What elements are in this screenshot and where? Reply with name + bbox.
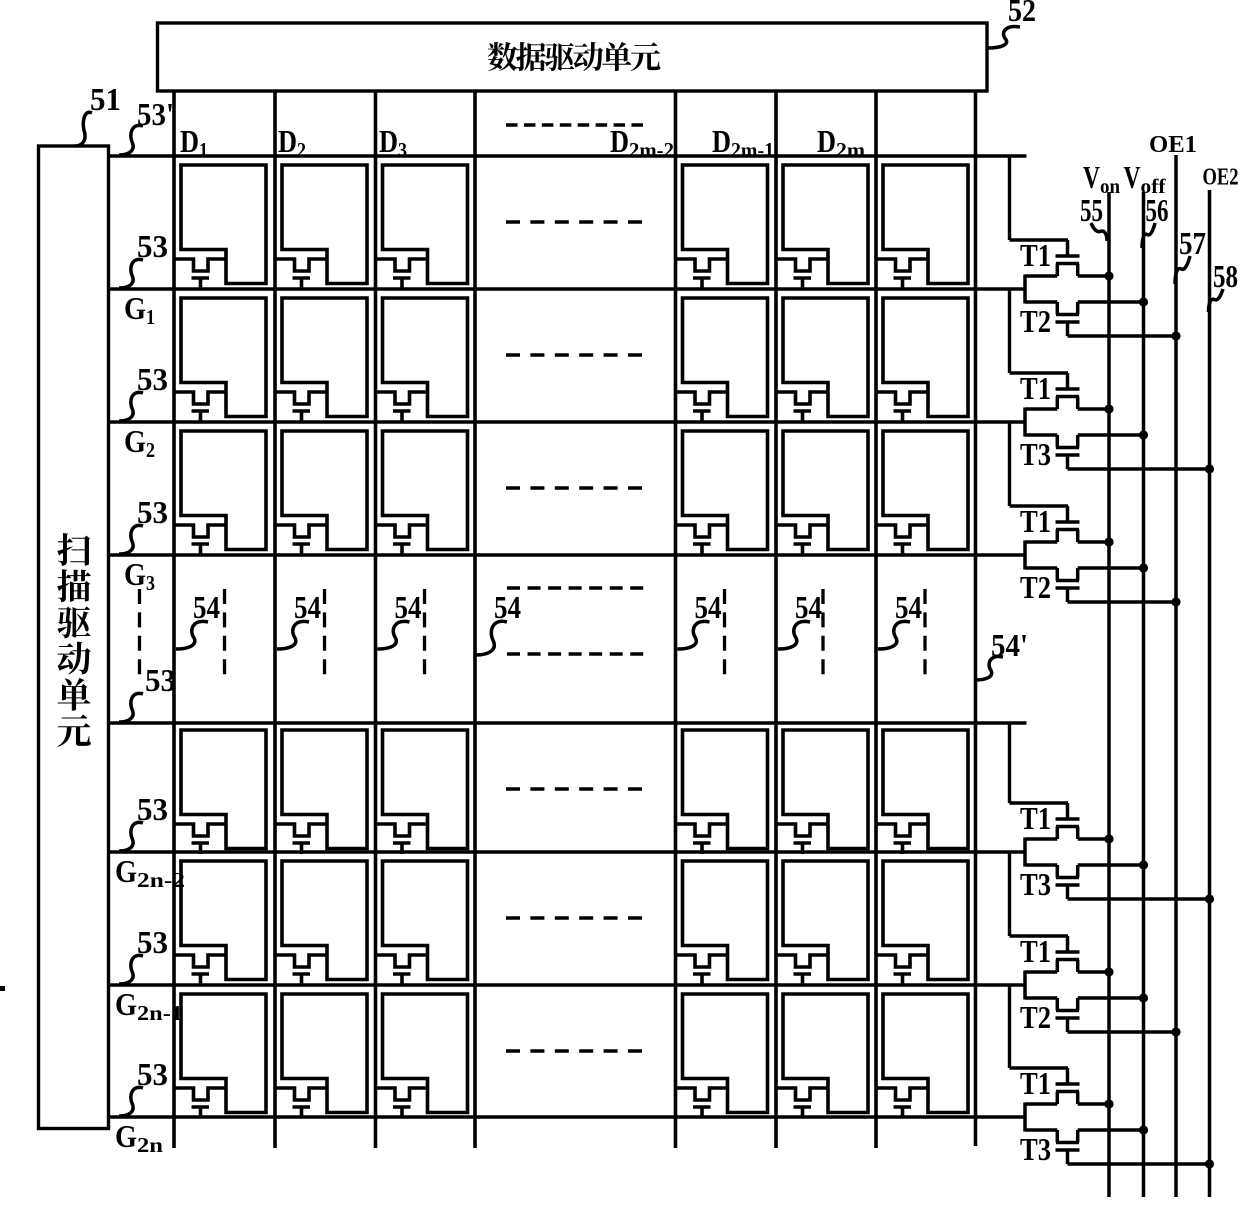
svg-text:D: D — [610, 123, 629, 159]
svg-text:T1: T1 — [1020, 933, 1051, 969]
svg-text:56: 56 — [1146, 192, 1169, 228]
svg-text:2m-2: 2m-2 — [629, 138, 674, 162]
svg-text:1: 1 — [146, 305, 155, 329]
svg-text:54: 54 — [695, 589, 722, 625]
svg-text:2m-1: 2m-1 — [731, 138, 774, 162]
svg-text:53: 53 — [145, 662, 176, 698]
svg-text:57: 57 — [1179, 225, 1206, 261]
svg-text:54: 54 — [193, 589, 220, 625]
svg-text:54: 54 — [895, 589, 922, 625]
svg-text:58: 58 — [1213, 258, 1238, 294]
svg-text:2n: 2n — [137, 1133, 163, 1157]
svg-text:2n-2: 2n-2 — [137, 868, 185, 892]
svg-text:T1: T1 — [1020, 1065, 1051, 1101]
svg-text:T1: T1 — [1020, 237, 1051, 273]
svg-text:T2: T2 — [1020, 569, 1051, 605]
svg-text:G: G — [115, 1118, 137, 1154]
svg-text:2m: 2m — [836, 138, 866, 162]
svg-text:D: D — [379, 123, 398, 159]
svg-text:V: V — [1124, 159, 1141, 195]
svg-text:2n-1: 2n-1 — [137, 1001, 183, 1025]
svg-text:T1: T1 — [1020, 503, 1051, 539]
svg-text:1: 1 — [199, 138, 208, 162]
svg-text:2: 2 — [146, 438, 155, 462]
svg-text:D: D — [180, 123, 199, 159]
svg-text:3: 3 — [146, 571, 155, 595]
svg-text:54: 54 — [795, 589, 822, 625]
svg-text:T3: T3 — [1020, 436, 1051, 472]
svg-text:52: 52 — [1008, 0, 1036, 28]
svg-text:T3: T3 — [1020, 1131, 1051, 1167]
svg-text:3: 3 — [398, 138, 407, 162]
svg-text:OE2: OE2 — [1203, 165, 1239, 191]
svg-text:G: G — [115, 986, 137, 1022]
svg-text:G: G — [115, 853, 137, 889]
svg-text:T1: T1 — [1020, 370, 1051, 406]
svg-text:54: 54 — [494, 589, 521, 625]
svg-text:T1: T1 — [1020, 800, 1051, 836]
svg-text:D: D — [712, 123, 731, 159]
svg-text:54: 54 — [395, 589, 422, 625]
svg-text:V: V — [1083, 159, 1100, 195]
svg-text:on: on — [1100, 174, 1120, 198]
svg-text:D: D — [817, 123, 836, 159]
svg-text:55: 55 — [1080, 192, 1103, 228]
svg-text:51: 51 — [90, 81, 121, 117]
svg-text:D: D — [278, 123, 297, 159]
svg-text:G: G — [124, 290, 146, 326]
svg-text:T2: T2 — [1020, 303, 1051, 339]
svg-text:G: G — [124, 423, 146, 459]
svg-text:OE1: OE1 — [1149, 132, 1197, 158]
svg-text:G: G — [124, 556, 146, 592]
svg-text:T3: T3 — [1020, 866, 1051, 902]
svg-text:54: 54 — [294, 589, 321, 625]
svg-text:T2: T2 — [1020, 999, 1051, 1035]
svg-text:2: 2 — [297, 138, 306, 162]
